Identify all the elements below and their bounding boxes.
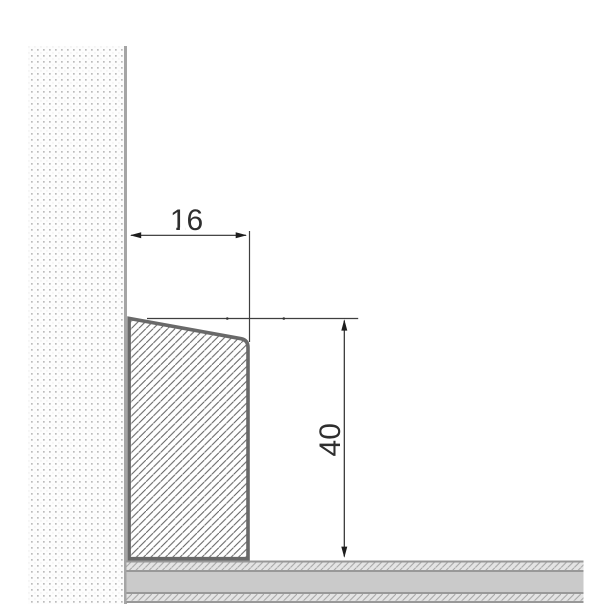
svg-text:40: 40 xyxy=(314,423,347,456)
svg-text:16: 16 xyxy=(170,204,203,237)
